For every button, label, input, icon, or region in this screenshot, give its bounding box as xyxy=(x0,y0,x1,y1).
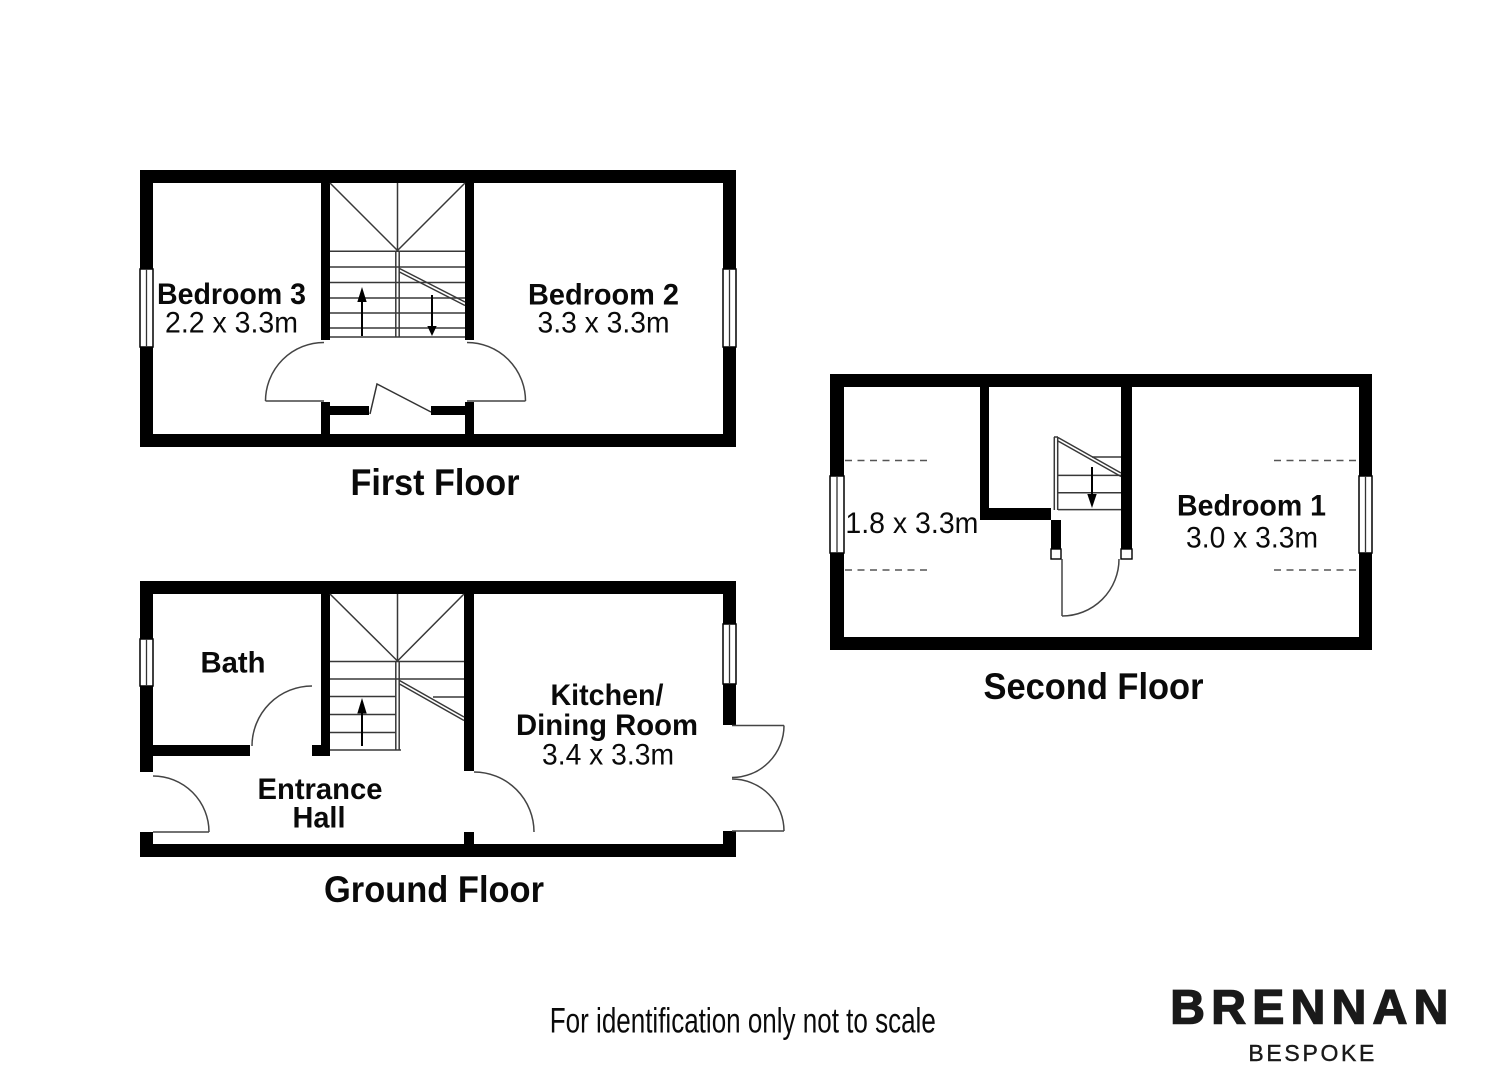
svg-text:Second Floor: Second Floor xyxy=(984,666,1204,707)
svg-text:1.8 x 3.3m: 1.8 x 3.3m xyxy=(845,507,978,540)
svg-text:Kitchen/: Kitchen/ xyxy=(551,679,665,712)
svg-text:3.3 x 3.3m: 3.3 x 3.3m xyxy=(538,307,670,340)
svg-text:BESPOKE: BESPOKE xyxy=(1248,1040,1374,1066)
svg-text:3.4 x 3.3m: 3.4 x 3.3m xyxy=(542,739,674,772)
svg-text:Ground Floor: Ground Floor xyxy=(324,869,544,910)
svg-text:Bath: Bath xyxy=(201,647,266,680)
svg-text:3.0 x 3.3m: 3.0 x 3.3m xyxy=(1186,522,1318,555)
svg-text:First Floor: First Floor xyxy=(351,462,520,503)
svg-text:Bedroom 1: Bedroom 1 xyxy=(1177,490,1326,523)
svg-text:Hall: Hall xyxy=(293,802,346,835)
svg-text:2.2 x 3.3m: 2.2 x 3.3m xyxy=(165,307,298,340)
svg-text:Dining Room: Dining Room xyxy=(516,709,698,742)
svg-text:For identification only not to: For identification only not to scale xyxy=(550,1002,936,1041)
svg-text:BRENNAN: BRENNAN xyxy=(1170,981,1448,1034)
